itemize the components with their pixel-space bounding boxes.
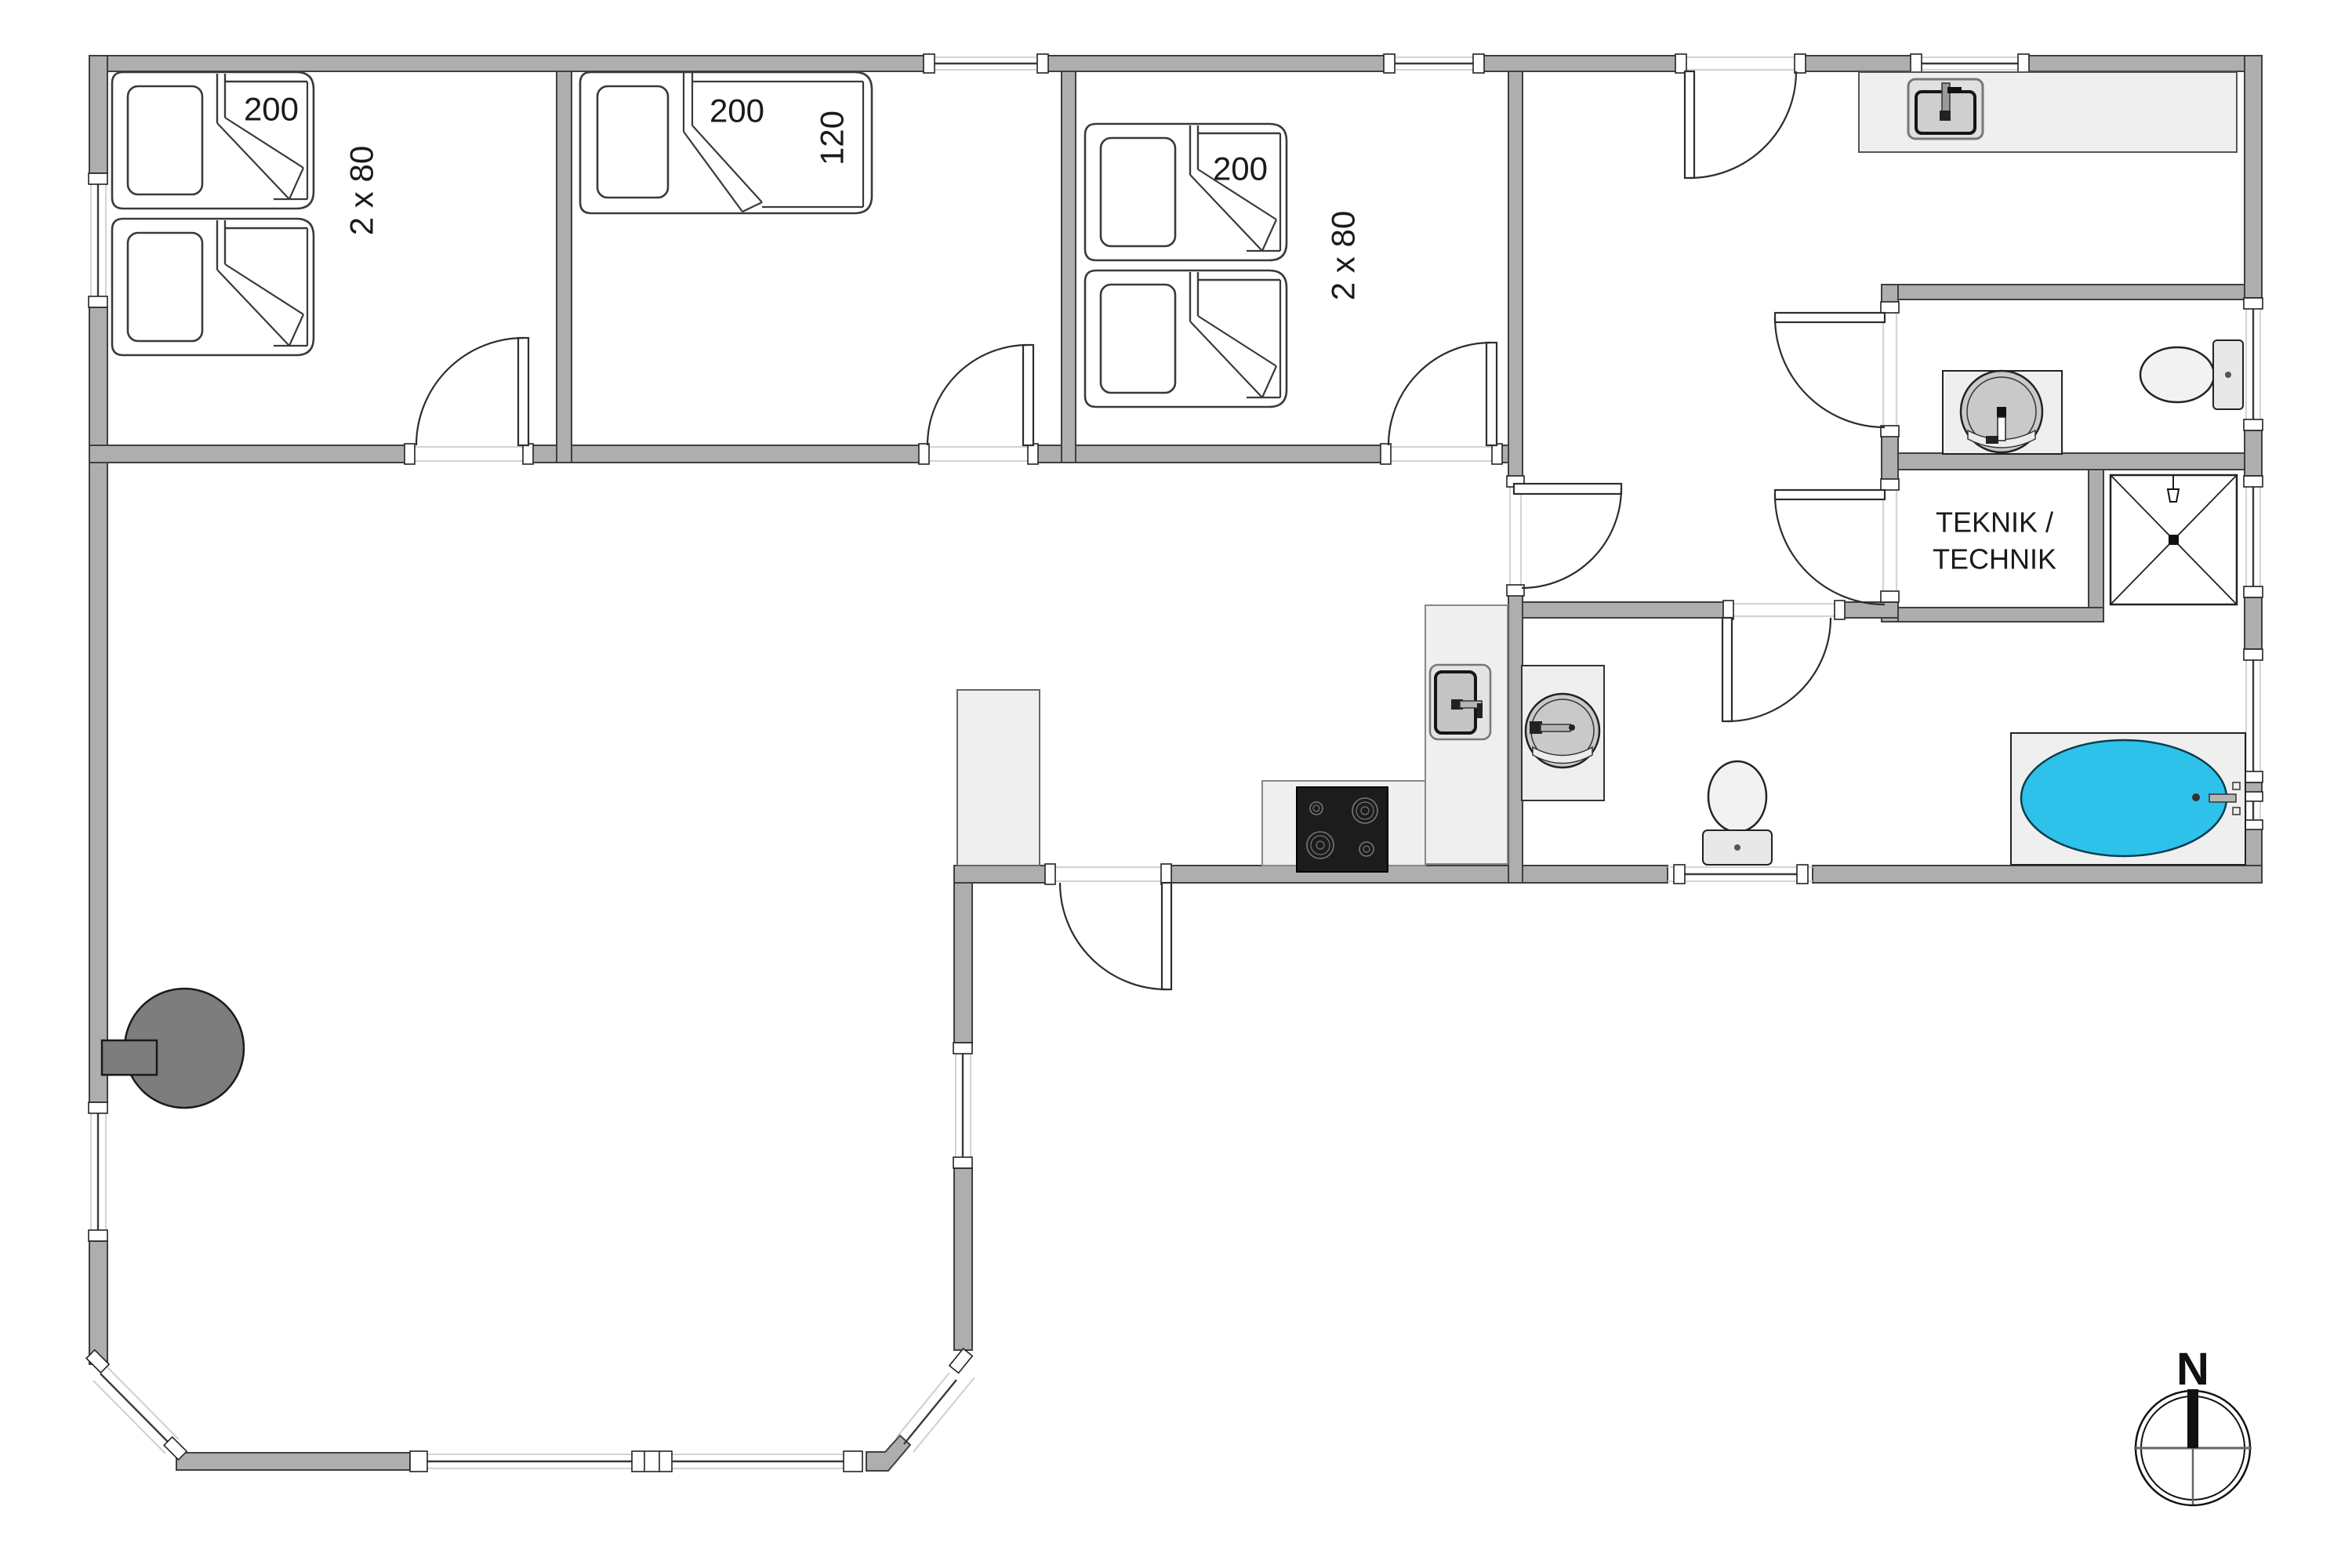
svg-text:200: 200 (244, 91, 299, 128)
svg-text:TEKNIK /: TEKNIK / (1936, 506, 2053, 539)
svg-text:200: 200 (710, 93, 764, 129)
svg-text:TECHNIK: TECHNIK (1933, 543, 2056, 575)
svg-text:200: 200 (1213, 151, 1268, 187)
svg-text:2 x 80: 2 x 80 (343, 146, 380, 235)
svg-text:N: N (2176, 1344, 2209, 1395)
svg-text:120: 120 (814, 111, 851, 165)
svg-text:2 x 80: 2 x 80 (1325, 211, 1362, 300)
